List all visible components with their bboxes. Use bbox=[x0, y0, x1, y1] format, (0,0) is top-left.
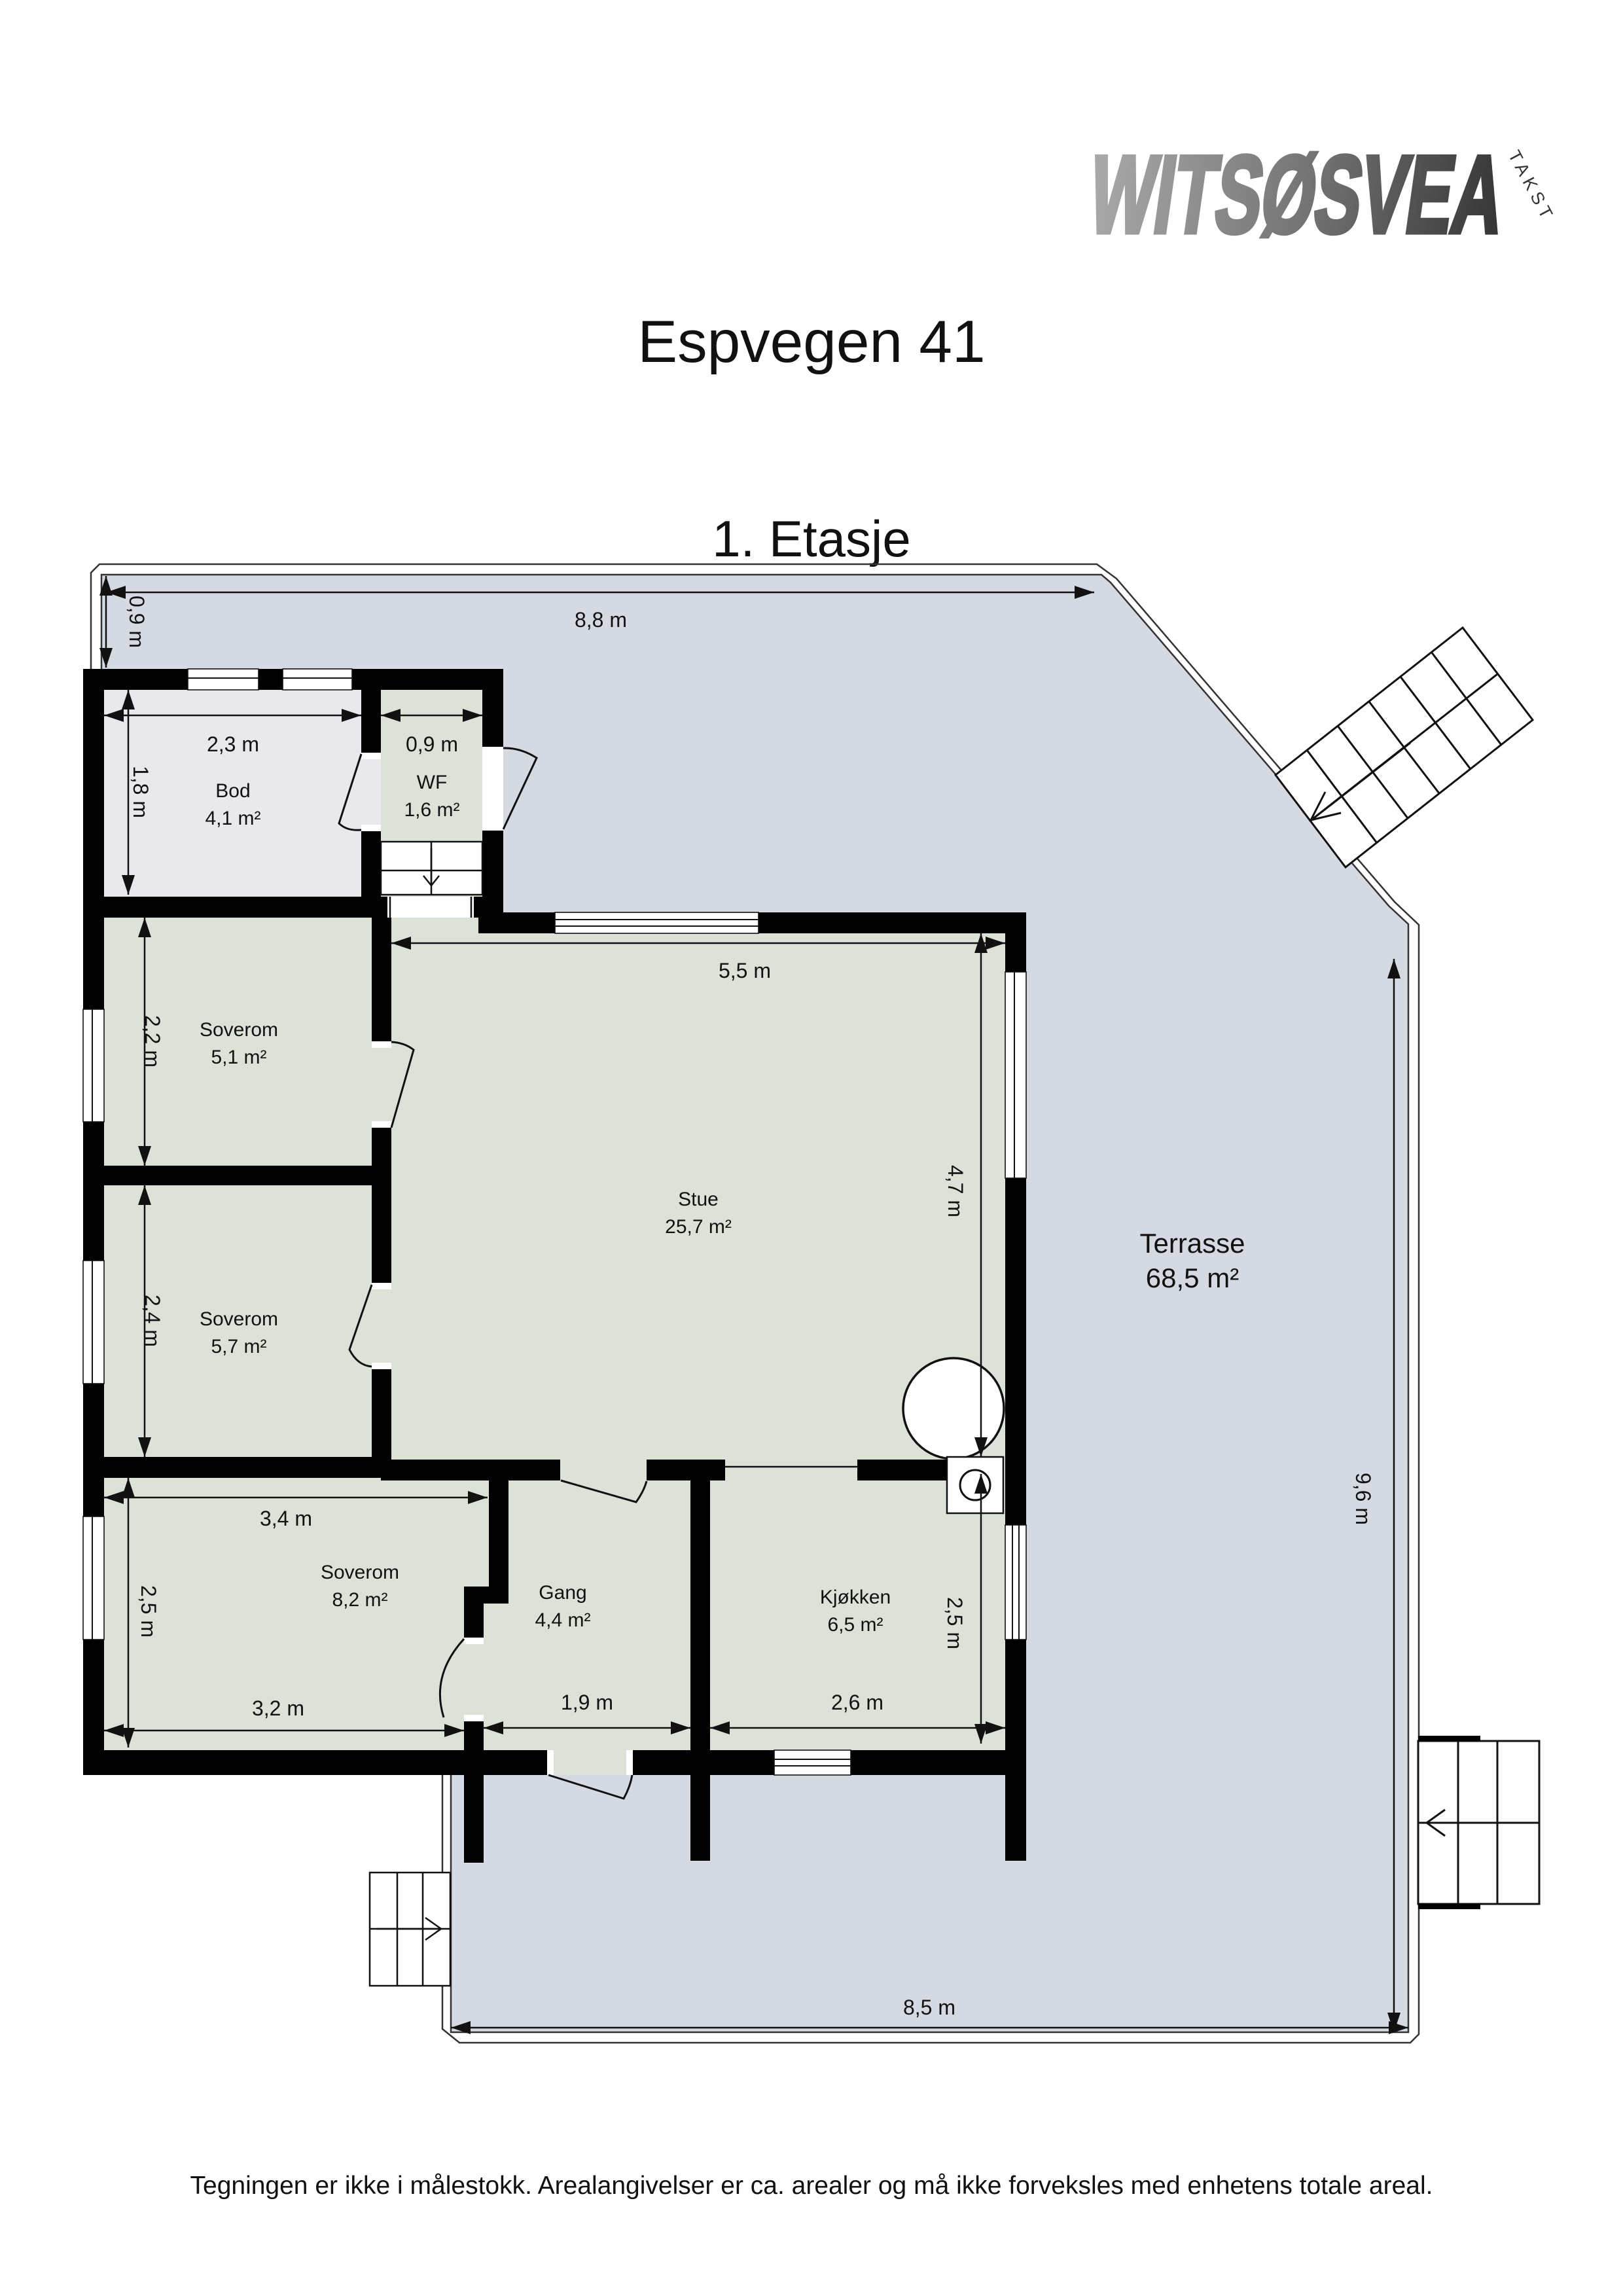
svg-text:9,6 m: 9,6 m bbox=[1351, 1473, 1375, 1525]
svg-text:6,5 m²: 6,5 m² bbox=[827, 1614, 883, 1636]
svg-text:1,9 m: 1,9 m bbox=[561, 1691, 613, 1714]
svg-text:WITSØSVEA: WITSØSVEA bbox=[1082, 133, 1512, 256]
svg-text:2,2 m: 2,2 m bbox=[141, 1015, 164, 1067]
svg-text:2,6 m: 2,6 m bbox=[831, 1691, 883, 1714]
svg-text:Gang: Gang bbox=[539, 1582, 586, 1604]
svg-text:Soverom: Soverom bbox=[321, 1562, 399, 1583]
svg-text:Tegningen er ikke i målestokk.: Tegningen er ikke i målestokk. Arealangi… bbox=[190, 2172, 1433, 2200]
svg-text:Kjøkken: Kjøkken bbox=[820, 1587, 891, 1608]
svg-text:Stue: Stue bbox=[678, 1189, 719, 1210]
svg-text:2,5 m: 2,5 m bbox=[137, 1585, 160, 1638]
svg-text:68,5 m²: 68,5 m² bbox=[1146, 1263, 1239, 1293]
svg-text:3,2 m: 3,2 m bbox=[252, 1696, 304, 1720]
svg-text:WF: WF bbox=[417, 772, 448, 793]
svg-text:2,3 m: 2,3 m bbox=[207, 732, 259, 756]
svg-text:2,5 m: 2,5 m bbox=[943, 1597, 967, 1649]
svg-text:5,5 m: 5,5 m bbox=[719, 959, 771, 982]
svg-text:0,9 m: 0,9 m bbox=[125, 596, 149, 648]
svg-text:1,8 m: 1,8 m bbox=[129, 766, 152, 818]
svg-text:4,7 m: 4,7 m bbox=[944, 1165, 967, 1217]
svg-text:0,9 m: 0,9 m bbox=[406, 732, 458, 756]
svg-text:4,1 m²: 4,1 m² bbox=[205, 808, 260, 829]
svg-text:2,4 m: 2,4 m bbox=[141, 1295, 164, 1347]
svg-text:8,8 m: 8,8 m bbox=[575, 608, 627, 632]
svg-text:8,5 m: 8,5 m bbox=[903, 1996, 955, 2019]
svg-text:5,7 m²: 5,7 m² bbox=[211, 1336, 266, 1357]
svg-text:Bod: Bod bbox=[215, 780, 250, 802]
svg-text:5,1 m²: 5,1 m² bbox=[211, 1047, 266, 1068]
svg-text:Espvegen 41: Espvegen 41 bbox=[637, 309, 985, 375]
svg-text:Terrasse: Terrasse bbox=[1139, 1228, 1245, 1259]
svg-text:Soverom: Soverom bbox=[200, 1019, 278, 1041]
svg-text:8,2 m²: 8,2 m² bbox=[332, 1589, 387, 1611]
svg-text:4,4 m²: 4,4 m² bbox=[535, 1609, 590, 1631]
svg-text:25,7 m²: 25,7 m² bbox=[665, 1216, 732, 1238]
svg-text:1,6 m²: 1,6 m² bbox=[404, 799, 459, 821]
svg-text:1. Etasje: 1. Etasje bbox=[712, 510, 911, 567]
svg-text:3,4 m: 3,4 m bbox=[260, 1507, 312, 1530]
svg-text:Soverom: Soverom bbox=[200, 1308, 278, 1330]
